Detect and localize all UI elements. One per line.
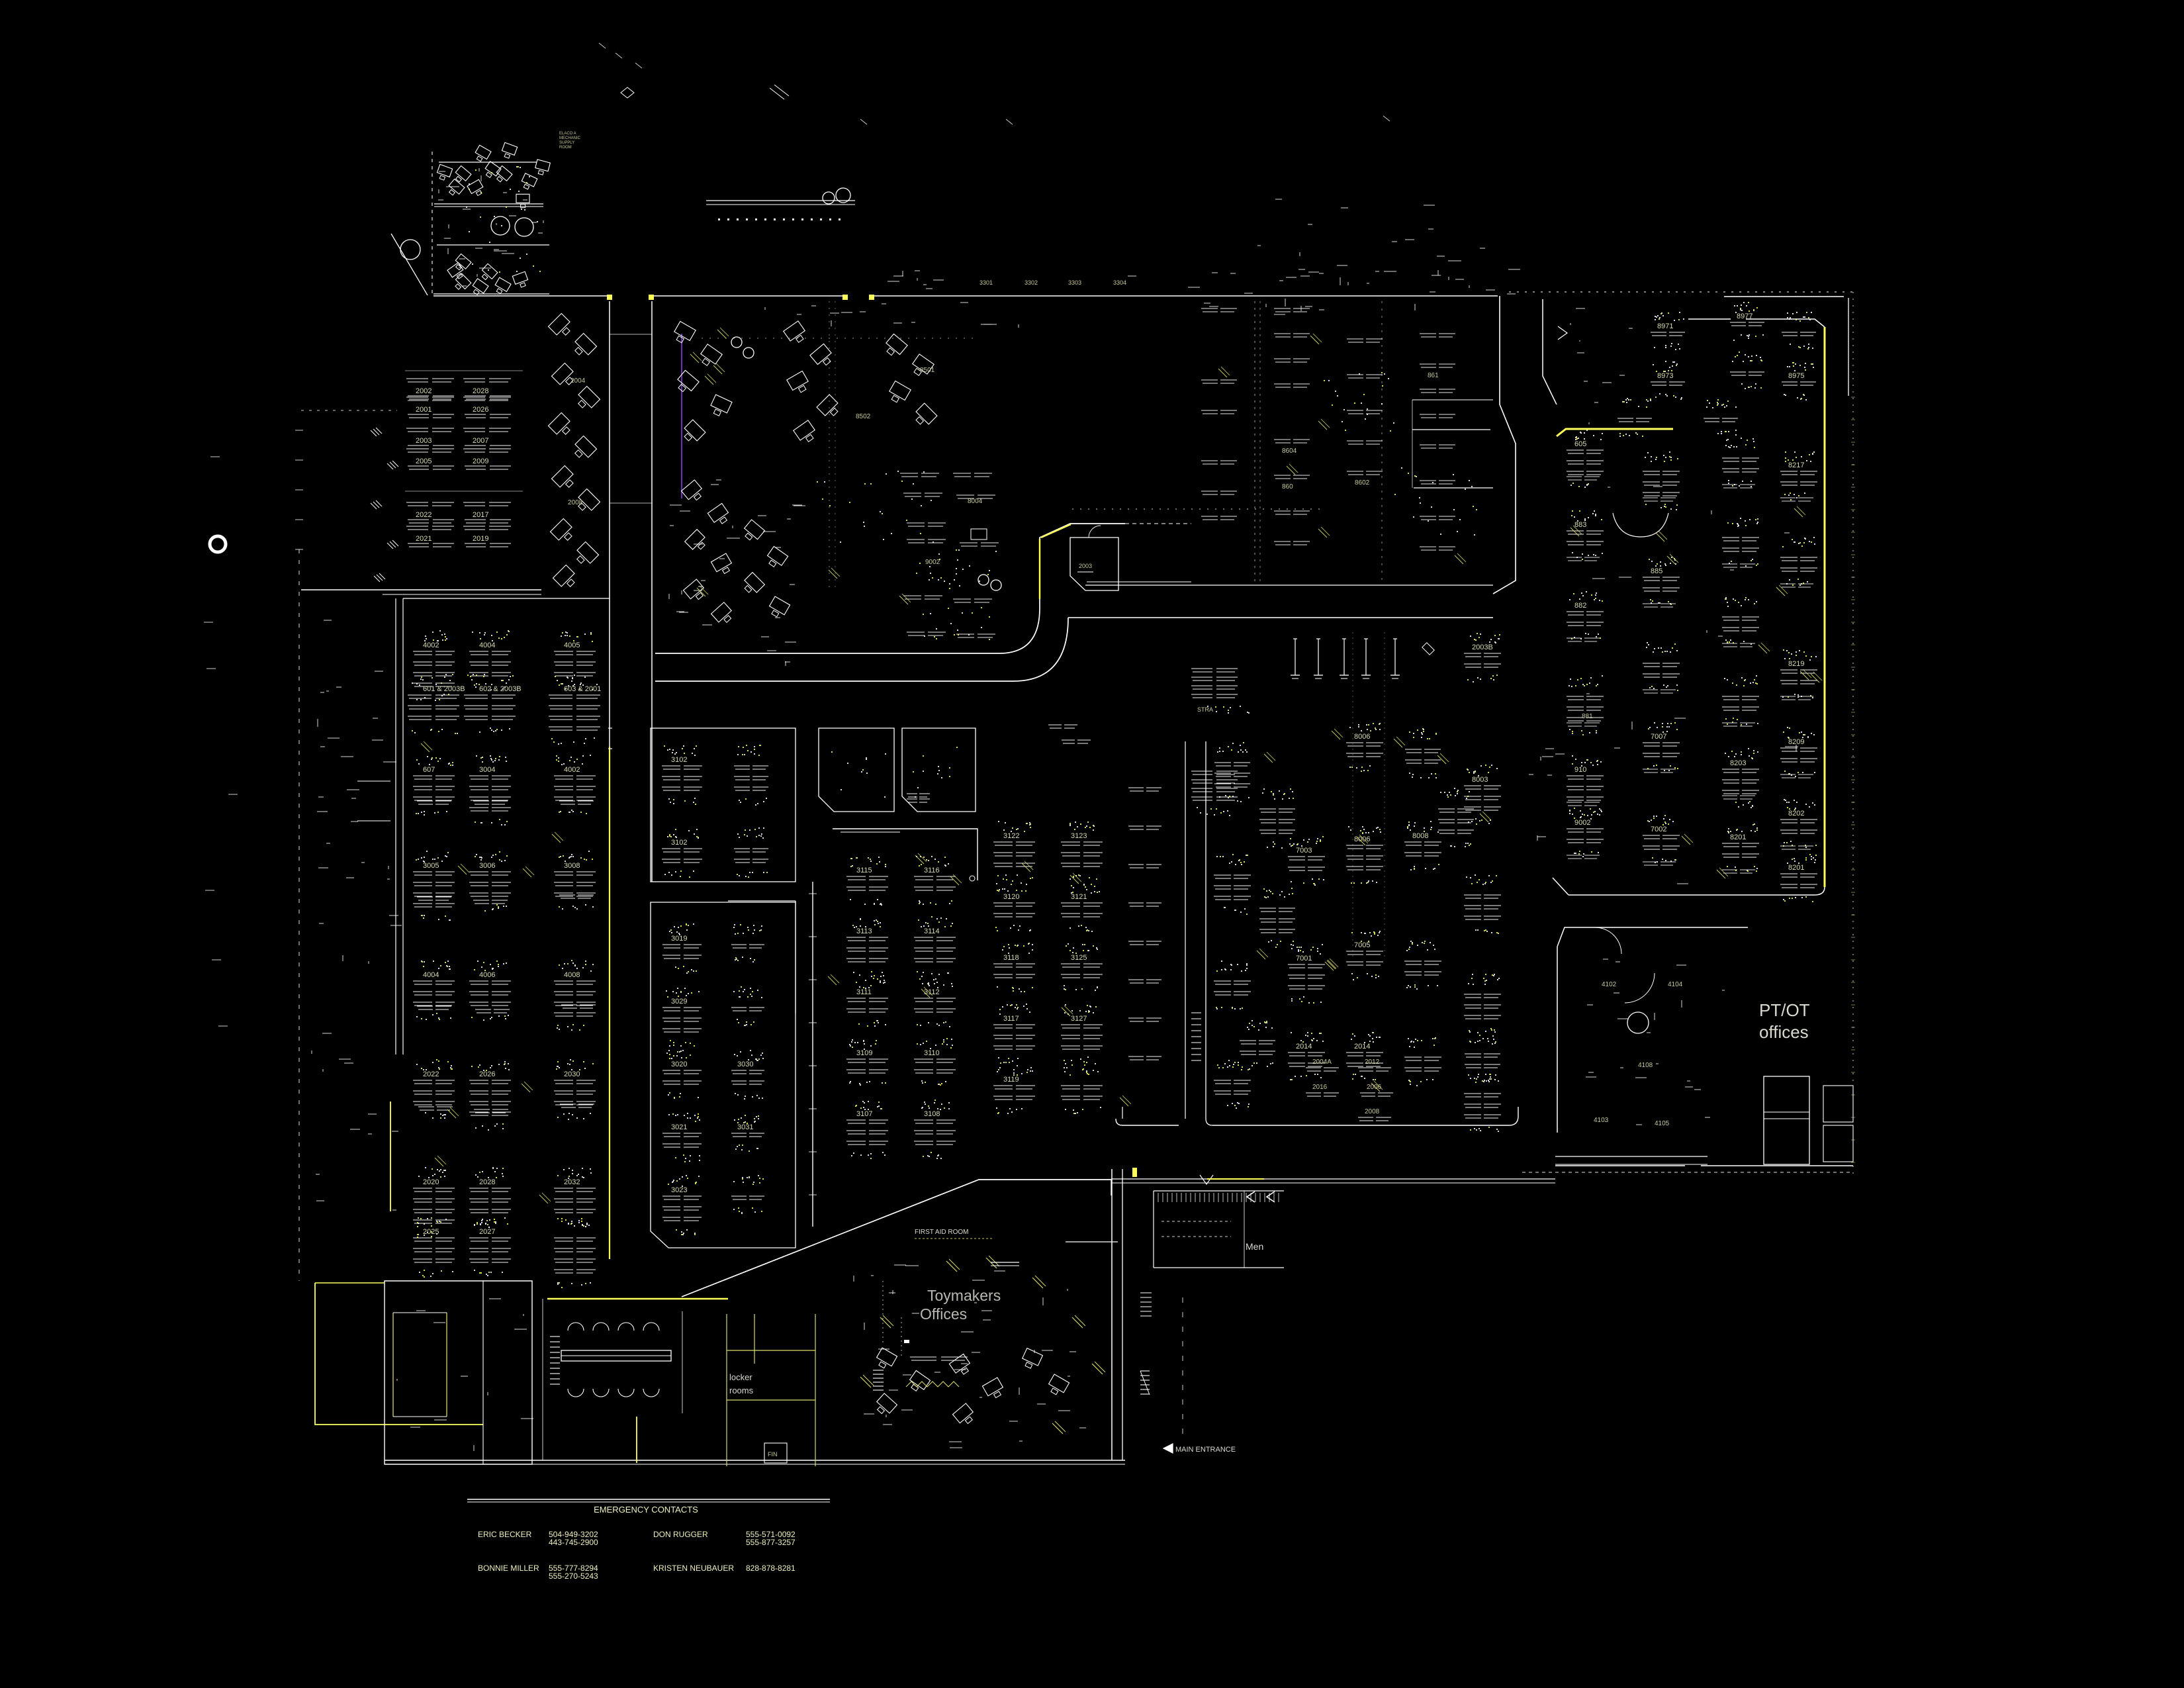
svg-text:KRISTEN NEUBAUER: KRISTEN NEUBAUER — [653, 1564, 734, 1573]
svg-text:910: 910 — [1574, 766, 1586, 774]
svg-text:3019: 3019 — [671, 935, 687, 943]
svg-text:Men: Men — [1246, 1241, 1263, 1252]
svg-text:2026: 2026 — [473, 406, 488, 414]
svg-text:3118: 3118 — [1003, 954, 1019, 962]
svg-text:locker: locker — [729, 1372, 752, 1382]
svg-text:8602: 8602 — [1355, 479, 1370, 487]
svg-text:3120: 3120 — [1003, 893, 1019, 901]
svg-text:4005: 4005 — [564, 641, 580, 649]
svg-text:3029: 3029 — [671, 998, 687, 1006]
svg-text:8501: 8501 — [920, 367, 935, 374]
svg-text:Toymakers: Toymakers — [927, 1287, 1001, 1304]
svg-text:2028: 2028 — [479, 1178, 495, 1186]
svg-text:3023: 3023 — [671, 1186, 687, 1194]
svg-text:2003B: 2003B — [1472, 643, 1493, 651]
svg-text:8201: 8201 — [1730, 833, 1746, 841]
svg-text:7001: 7001 — [1296, 955, 1312, 962]
svg-text:3030: 3030 — [737, 1060, 753, 1068]
svg-text:3110: 3110 — [924, 1049, 940, 1057]
svg-text:4002: 4002 — [564, 766, 580, 774]
svg-text:7002: 7002 — [1651, 825, 1666, 833]
svg-text:3020: 3020 — [671, 1060, 687, 1068]
svg-text:3031: 3031 — [737, 1123, 753, 1131]
svg-text:828-878-8281: 828-878-8281 — [746, 1564, 796, 1573]
svg-text:ROOM: ROOM — [559, 146, 572, 150]
svg-text:4004: 4004 — [423, 971, 439, 979]
svg-text:MECHANIC: MECHANIC — [559, 136, 581, 140]
svg-text:4105: 4105 — [1655, 1120, 1670, 1127]
svg-text:3304: 3304 — [1113, 279, 1126, 286]
svg-text:2003: 2003 — [1079, 563, 1092, 569]
svg-text:8604: 8604 — [1282, 447, 1297, 455]
svg-text:SUPPLY: SUPPLY — [559, 141, 574, 145]
svg-text:555-270-5243: 555-270-5243 — [549, 1571, 598, 1581]
svg-text:2027: 2027 — [479, 1228, 495, 1236]
svg-text:3125: 3125 — [1071, 954, 1087, 962]
svg-text:4008: 4008 — [564, 971, 580, 979]
svg-text:STRA: STRA — [1197, 706, 1213, 713]
svg-text:443-745-2900: 443-745-2900 — [549, 1538, 598, 1547]
svg-text:3123: 3123 — [1071, 832, 1087, 840]
svg-text:881: 881 — [1582, 713, 1593, 720]
svg-text:3021: 3021 — [671, 1123, 687, 1131]
svg-text:8502: 8502 — [856, 413, 871, 420]
svg-text:8004: 8004 — [968, 498, 983, 505]
svg-text:9002: 9002 — [1574, 819, 1590, 827]
svg-text:3108: 3108 — [924, 1110, 940, 1118]
svg-text:2021: 2021 — [416, 535, 432, 543]
svg-text:882: 882 — [1574, 602, 1586, 610]
svg-text:3113: 3113 — [856, 927, 872, 935]
svg-text:2008: 2008 — [1365, 1108, 1380, 1115]
svg-text:2030: 2030 — [564, 1070, 580, 1078]
svg-text:2009: 2009 — [473, 457, 488, 465]
svg-text:8003: 8003 — [1472, 776, 1488, 784]
svg-text:8217: 8217 — [1788, 461, 1804, 469]
svg-text:8973: 8973 — [1657, 372, 1673, 380]
svg-text:2016: 2016 — [1312, 1084, 1328, 1091]
svg-text:2022: 2022 — [423, 1070, 439, 1078]
svg-text:602 & 2003B: 602 & 2003B — [479, 685, 522, 693]
svg-text:2007: 2007 — [473, 437, 488, 445]
svg-text:FIRST AID ROOM: FIRST AID ROOM — [915, 1229, 969, 1236]
svg-text:2032: 2032 — [564, 1178, 580, 1186]
svg-text:rooms: rooms — [729, 1385, 754, 1395]
svg-text:8201: 8201 — [1788, 864, 1804, 872]
svg-text:3102: 3102 — [671, 839, 687, 847]
svg-text:3303: 3303 — [1068, 279, 1081, 286]
svg-text:860: 860 — [1282, 483, 1293, 491]
svg-text:605: 605 — [1574, 440, 1586, 448]
svg-text:2005: 2005 — [416, 457, 432, 465]
svg-text:3121: 3121 — [1071, 893, 1087, 901]
svg-text:2020: 2020 — [423, 1178, 439, 1186]
svg-text:3109: 3109 — [856, 1049, 872, 1057]
svg-text:7003: 7003 — [1296, 847, 1312, 855]
svg-text:2022: 2022 — [416, 511, 432, 519]
svg-text:607: 607 — [423, 766, 435, 774]
svg-text:2014: 2014 — [1354, 1043, 1370, 1051]
svg-text:2028: 2028 — [473, 387, 488, 395]
svg-text:2012: 2012 — [1365, 1058, 1380, 1066]
svg-text:3008: 3008 — [564, 862, 580, 870]
svg-text:2019: 2019 — [473, 535, 488, 543]
svg-text:3122: 3122 — [1003, 832, 1019, 840]
svg-text:3102: 3102 — [671, 756, 687, 764]
svg-text:ERIC BECKER: ERIC BECKER — [478, 1530, 532, 1539]
svg-text:BONNIE MILLER: BONNIE MILLER — [478, 1564, 539, 1573]
svg-text:3116: 3116 — [924, 867, 940, 874]
svg-text:883: 883 — [1574, 521, 1586, 529]
svg-text:601 & 2003B: 601 & 2003B — [423, 685, 465, 693]
svg-text:3111: 3111 — [856, 988, 872, 996]
svg-text:4108: 4108 — [1638, 1062, 1653, 1069]
svg-text:3302: 3302 — [1024, 279, 1038, 286]
svg-text:885: 885 — [1651, 567, 1662, 575]
svg-text:4102: 4102 — [1602, 981, 1617, 988]
svg-text:2025: 2025 — [423, 1228, 439, 1236]
svg-text:PT/OT: PT/OT — [1759, 1000, 1810, 1020]
svg-text:2008: 2008 — [568, 499, 583, 506]
svg-text:7007: 7007 — [1651, 733, 1666, 741]
svg-text:603 & 2001: 603 & 2001 — [564, 685, 601, 693]
svg-text:offices: offices — [1759, 1022, 1809, 1042]
svg-text:8971: 8971 — [1657, 322, 1673, 330]
svg-text:4002: 4002 — [423, 641, 439, 649]
svg-text:2004A: 2004A — [1312, 1058, 1332, 1066]
svg-text:2026: 2026 — [479, 1070, 495, 1078]
svg-text:9002: 9002 — [925, 559, 940, 566]
svg-text:8006: 8006 — [1354, 733, 1370, 741]
svg-text:8202: 8202 — [1788, 810, 1804, 818]
svg-text:3117: 3117 — [1003, 1015, 1019, 1023]
svg-text:3301: 3301 — [979, 279, 993, 286]
svg-text:8219: 8219 — [1788, 660, 1804, 668]
svg-text:8977: 8977 — [1737, 312, 1752, 320]
svg-text:4104: 4104 — [1668, 981, 1683, 988]
svg-text:3004: 3004 — [479, 766, 495, 774]
svg-text:4103: 4103 — [1594, 1117, 1609, 1124]
svg-text:7005: 7005 — [1354, 941, 1370, 949]
svg-text:EMERGENCY CONTACTS: EMERGENCY CONTACTS — [594, 1505, 698, 1515]
svg-text:3005: 3005 — [423, 862, 439, 870]
svg-text:555-877-3257: 555-877-3257 — [746, 1538, 796, 1547]
svg-text:MAIN ENTRANCE: MAIN ENTRANCE — [1175, 1446, 1236, 1454]
svg-text:3119: 3119 — [1003, 1076, 1019, 1084]
svg-text:3114: 3114 — [924, 927, 940, 935]
svg-text:2001: 2001 — [416, 406, 432, 414]
svg-text:8975: 8975 — [1788, 372, 1804, 380]
svg-text:2002: 2002 — [416, 387, 432, 395]
svg-text:2004: 2004 — [570, 377, 586, 385]
svg-text:Offices: Offices — [920, 1305, 967, 1323]
svg-text:8203: 8203 — [1730, 759, 1746, 767]
svg-text:2006: 2006 — [1367, 1084, 1382, 1091]
svg-text:ELACO A: ELACO A — [559, 132, 576, 136]
svg-text:3107: 3107 — [856, 1110, 872, 1118]
svg-text:861: 861 — [1428, 372, 1439, 379]
svg-text:3115: 3115 — [856, 867, 872, 874]
svg-text:4004: 4004 — [479, 641, 495, 649]
svg-text:2014: 2014 — [1296, 1043, 1312, 1051]
svg-text:FIN: FIN — [768, 1451, 778, 1458]
svg-text:3127: 3127 — [1071, 1015, 1087, 1023]
svg-text:4006: 4006 — [479, 971, 495, 979]
svg-text:2017: 2017 — [473, 511, 488, 519]
svg-text:8008: 8008 — [1412, 832, 1428, 840]
svg-text:DON RUGGER: DON RUGGER — [653, 1530, 708, 1539]
svg-text:3006: 3006 — [479, 862, 495, 870]
svg-text:2003: 2003 — [416, 437, 432, 445]
